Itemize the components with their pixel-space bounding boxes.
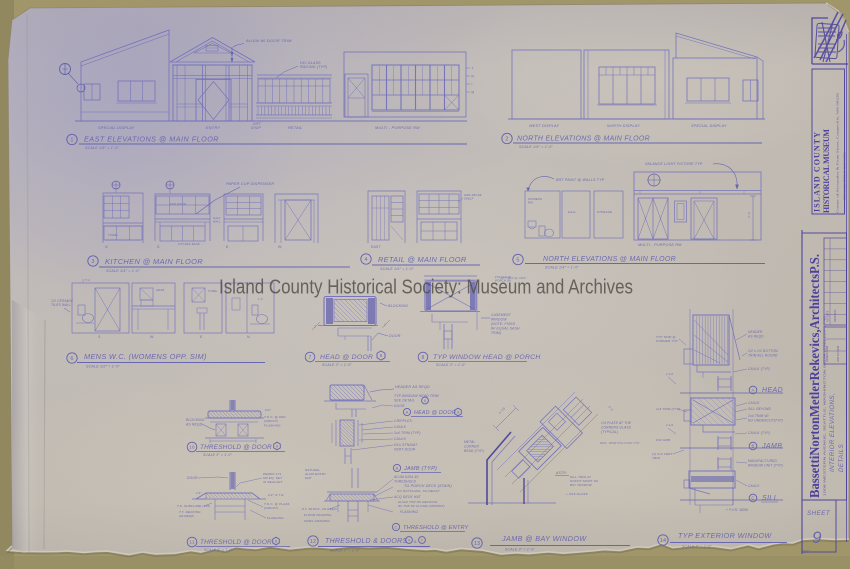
svg-text:2 1/2: 2 1/2 xyxy=(665,372,673,376)
svg-text:CAULK (TYP): CAULK (TYP) xyxy=(748,431,770,435)
svg-text:SHEET: SHEET xyxy=(807,510,831,517)
svg-text:BRT PAINT @ WALLS TYP: BRT PAINT @ WALLS TYP xyxy=(556,178,605,182)
svg-text:A: A xyxy=(406,409,409,414)
svg-text:CASEMENT: CASEMENT xyxy=(491,313,512,317)
svg-text:SCALE 3" = 1'-0": SCALE 3" = 1'-0" xyxy=(322,363,352,367)
svg-text:HEADER AS REQD: HEADER AS REQD xyxy=(395,385,430,389)
svg-text:1/2" N.T.S.: 1/2" N.T.S. xyxy=(268,493,285,497)
svg-text:WINDOW: WINDOW xyxy=(491,318,507,322)
svg-text:CRIPPLES: CRIPPLES xyxy=(394,419,413,423)
svg-text:JOB NO 8344: JOB NO 8344 xyxy=(836,345,840,362)
svg-text:ENTRY: ENTRY xyxy=(206,125,220,130)
svg-text:MANUFACTURED: MANUFACTURED xyxy=(748,459,777,463)
svg-text:AS REQD: AS REQD xyxy=(747,335,764,339)
svg-text:7: 7 xyxy=(309,355,312,361)
svg-text:W/ EQUAL SASH: W/ EQUAL SASH xyxy=(491,327,520,331)
svg-text:HALL: HALL xyxy=(568,210,576,214)
svg-text:FIN GWB: FIN GWB xyxy=(656,438,670,442)
svg-text:MULTI - PURPOSE RM: MULTI - PURPOSE RM xyxy=(638,243,682,247)
svg-text:HALF: HALF xyxy=(213,216,221,220)
svg-text:NO DATE: NO DATE xyxy=(826,310,830,322)
svg-text:SHELF: SHELF xyxy=(464,197,474,201)
svg-text:I: I xyxy=(472,83,473,87)
svg-text:HDW ABOVE: HDW ABOVE xyxy=(464,193,482,197)
svg-text:SCALE 1/4" = 1'-0": SCALE 1/4" = 1'-0" xyxy=(380,267,414,271)
svg-text:CAULK: CAULK xyxy=(394,425,407,429)
svg-text:1x4 TRIM (TYP): 1x4 TRIM (TYP) xyxy=(394,431,421,435)
svg-text:GRAB: GRAB xyxy=(156,288,164,292)
svg-text:KITCHEN @ MAIN FLOOR: KITCHEN @ MAIN FLOOR xyxy=(105,257,203,266)
svg-text:A: A xyxy=(752,388,755,393)
svg-text:HISTORICAL MUSEUM: HISTORICAL MUSEUM xyxy=(822,129,831,213)
svg-text:DOOR: DOOR xyxy=(394,404,405,408)
svg-text:N.: N. xyxy=(247,335,251,339)
svg-text:KITCHEN BAND: KITCHEN BAND xyxy=(178,242,200,246)
svg-text:1/4 PLATE AT THE: 1/4 PLATE AT THE xyxy=(601,421,632,425)
svg-text:JAMB: JAMB xyxy=(761,443,782,450)
svg-text:WINDOW UNIT (TYP): WINDOW UNIT (TYP) xyxy=(748,464,783,468)
svg-text:HEAD @ DOOR: HEAD @ DOOR xyxy=(320,354,373,361)
svg-text:HEAD: HEAD xyxy=(762,387,783,394)
svg-text:&: & xyxy=(414,539,417,544)
svg-text:TOWEL: TOWEL xyxy=(208,290,218,293)
svg-text:S.: S. xyxy=(98,335,102,339)
svg-text:FLOOR FRAMING: FLOOR FRAMING xyxy=(304,513,332,517)
svg-text:SCALE 1/8" = 1'-0": SCALE 1/8" = 1'-0" xyxy=(85,146,119,150)
svg-text:THRESHOLD @ DOOR: THRESHOLD @ DOOR xyxy=(200,539,272,546)
svg-text:ALUM #154-40: ALUM #154-40 xyxy=(393,475,419,479)
svg-text:SCALE 1/8" = 1'-0": SCALE 1/8" = 1'-0" xyxy=(519,145,553,149)
svg-text:(GROUT): (GROUT) xyxy=(264,506,278,510)
svg-text:6: 6 xyxy=(70,356,73,362)
svg-text:M: M xyxy=(472,91,475,95)
svg-text:RETAIL: RETAIL xyxy=(288,125,303,130)
svg-text:N.: N. xyxy=(105,245,109,249)
svg-text:DETAILS: DETAILS xyxy=(838,443,845,472)
svg-text:MFD. WDW POLYGON TYP: MFD. WDW POLYGON TYP xyxy=(600,441,639,445)
svg-text:1/2": 1/2" xyxy=(265,408,272,412)
svg-text:CAULK (TYP): CAULK (TYP) xyxy=(748,367,770,371)
svg-text:MENS W.C. (WOMENS OPP. SIM: MENS W.C. (WOMENS OPP. SIM) xyxy=(84,352,207,361)
svg-text:1x4 TRIM W/: 1x4 TRIM W/ xyxy=(748,414,770,418)
svg-text:SCALE 1/4" = 1'-0": SCALE 1/4" = 1'-0" xyxy=(545,266,579,270)
svg-text:SCALE 3" = 1'-0": SCALE 3" = 1'-0" xyxy=(203,453,233,457)
svg-text:EAST: EAST xyxy=(371,245,381,249)
svg-text:FLASHING: FLASHING xyxy=(400,510,418,514)
svg-text:S.: S. xyxy=(157,245,161,249)
svg-text:HEADER: HEADER xyxy=(748,330,763,334)
svg-text:B: B xyxy=(752,444,755,449)
svg-text:DRAWN EAW: DRAWN EAW xyxy=(825,345,829,362)
svg-text:12: 12 xyxy=(310,539,317,545)
svg-text:SILL: SILL xyxy=(762,495,778,502)
svg-text:SCALE 6" = 1'-0": SCALE 6" = 1'-0" xyxy=(682,545,712,549)
svg-text:WALL: WALL xyxy=(213,220,221,224)
svg-text:MAT: MAT xyxy=(305,476,313,480)
svg-text:BAY WINDOW: BAY WINDOW xyxy=(570,483,593,487)
svg-text:TYP WINDOW HEAD TRIM: TYP WINDOW HEAD TRIM xyxy=(394,394,439,398)
svg-text:WEST DISPLAY: WEST DISPLAY xyxy=(529,124,559,128)
svg-text:TYP EXTERIOR WINDOW: TYP EXTERIOR WINDOW xyxy=(678,531,772,540)
svg-text:RM: RM xyxy=(528,201,533,205)
svg-text:REG NO 3142 STATE OF WASHINGT: REG NO 3142 STATE OF WASHINGTON xyxy=(843,152,847,200)
svg-text:BLOCKING: BLOCKING xyxy=(186,418,205,422)
svg-text:SEE DETAIL: SEE DETAIL xyxy=(394,399,415,403)
svg-text:TRIM): TRIM) xyxy=(491,331,501,335)
svg-text:HEAD @ DOOR: HEAD @ DOOR xyxy=(414,410,456,416)
svg-text:13: 13 xyxy=(474,541,481,547)
svg-text:SCALE 1/4" = 1'-0": SCALE 1/4" = 1'-0" xyxy=(106,269,140,273)
svg-text:SCALE 3" = 1'-0": SCALE 3" = 1'-0" xyxy=(436,363,466,367)
svg-text:NORTH ELEVATIONS @ MAIN FLOOR: NORTH ELEVATIONS @ MAIN FLOOR xyxy=(543,256,676,263)
svg-text:HCs STN/NAT: HCs STN/NAT xyxy=(394,443,418,447)
svg-text:1/4": 1/4" xyxy=(196,491,202,495)
svg-text:8: 8 xyxy=(422,355,425,361)
svg-text:5'-2: 5'-2 xyxy=(85,278,90,282)
svg-text:SCALE 3" = 1'-0": SCALE 3" = 1'-0" xyxy=(330,549,360,553)
svg-text:DOOR: DOOR xyxy=(187,476,198,480)
svg-text:NORTH ELEVATIONS @ MAIN FLOOR: NORTH ELEVATIONS @ MAIN FLOOR xyxy=(517,136,650,143)
svg-text:SCALE 3" = 1'-0": SCALE 3" = 1'-0" xyxy=(505,548,535,552)
svg-text:1008 WESTERN AVENUE, SEATTLE,: 1008 WESTERN AVENUE, SEATTLE, WASHINGTON… xyxy=(823,315,827,496)
svg-text:9: 9 xyxy=(812,528,822,547)
svg-text:8: 8 xyxy=(380,353,383,359)
svg-text:1x4 TRIM (TYP): 1x4 TRIM (TYP) xyxy=(656,407,680,411)
svg-text:STORAGE: STORAGE xyxy=(597,210,612,214)
svg-text:W.: W. xyxy=(278,245,282,249)
svg-text:OF: OF xyxy=(803,549,810,554)
svg-text:PAPER CUP DISPENSER: PAPER CUP DISPENSER xyxy=(226,182,274,186)
svg-text:1: 1 xyxy=(70,137,73,143)
svg-text:+ 5/16 GLASS: + 5/16 GLASS xyxy=(566,492,588,496)
svg-text:ALIGN W/ DOOR TRIM: ALIGN W/ DOOR TRIM xyxy=(245,38,292,43)
svg-text:2 1/2: 2 1/2 xyxy=(665,423,673,427)
svg-text:THRESHOLD: THRESHOLD xyxy=(394,480,417,484)
svg-text:+ P.OS. WDW: + P.OS. WDW xyxy=(726,508,749,512)
svg-text:BEAD (TYP): BEAD (TYP) xyxy=(464,449,484,453)
svg-text:VERT DOOR: VERT DOOR xyxy=(394,448,416,452)
svg-text:CORNER: CORNER xyxy=(464,445,480,449)
svg-text:MULTI - PURPOSE RM: MULTI - PURPOSE RM xyxy=(375,125,420,130)
svg-text:IN SEALANT: IN SEALANT xyxy=(263,480,283,484)
svg-text:ACQ DECK HAT: ACQ DECK HAT xyxy=(393,495,422,499)
svg-text:TG PORCH DECK (STAIN): TG PORCH DECK (STAIN) xyxy=(404,484,452,488)
svg-text:E.: E. xyxy=(200,335,204,339)
svg-text:ISLAND COUNTY: ISLAND COUNTY xyxy=(813,132,822,212)
svg-text:SCALE 3" = 1'-0": SCALE 3" = 1'-0" xyxy=(204,548,234,552)
svg-text:P.T. BLOCK, AS REQD: P.T. BLOCK, AS REQD xyxy=(302,507,337,511)
svg-text:TOWEL: TOWEL xyxy=(108,233,119,237)
svg-text:BassettiNortonMetlerRekevics,A: BassettiNortonMetlerRekevics,ArchitectsP… xyxy=(807,254,822,498)
svg-text:CORNERS GLASS: CORNERS GLASS xyxy=(601,426,632,430)
svg-text:JAMB (TYP): JAMB (TYP) xyxy=(403,466,437,472)
svg-text:METAL: METAL xyxy=(464,440,475,444)
svg-text:DOOR: DOOR xyxy=(389,334,401,338)
svg-text:SHOP: SHOP xyxy=(251,126,262,130)
svg-text:VALANCE LIGHT FIXTURE TYP: VALANCE LIGHT FIXTURE TYP xyxy=(645,162,703,166)
svg-text:RETAIL @ MAIN FLOOR: RETAIL @ MAIN FLOOR xyxy=(378,255,467,264)
svg-text:1/2 x 1/2 BOTTOM: 1/2 x 1/2 BOTTOM xyxy=(748,349,778,353)
svg-text:THRESHOLD @ ENTRY: THRESHOLD @ ENTRY xyxy=(403,525,470,531)
svg-text:NO UNDERCUT(TYP): NO UNDERCUT(TYP) xyxy=(748,419,783,423)
svg-text:SILL BEYOND: SILL BEYOND xyxy=(748,407,772,411)
svg-text:B: B xyxy=(396,465,399,470)
svg-text:CORNER TYP: CORNER TYP xyxy=(656,339,678,343)
svg-text:(GROUT): (GROUT) xyxy=(264,419,278,423)
svg-text:NO NOTCHING, NO DECAY: NO NOTCHING, NO DECAY xyxy=(397,489,440,493)
svg-text:EAST ELEVATIONS @ MAIN FLOOR: EAST ELEVATIONS @ MAIN FLOOR xyxy=(84,135,219,144)
svg-text:FAN HOOD: FAN HOOD xyxy=(170,202,186,206)
svg-text:AS REQD: AS REQD xyxy=(185,423,203,427)
svg-text:W.: W. xyxy=(150,335,154,339)
svg-text:4: 4 xyxy=(408,538,410,542)
svg-text:11: 11 xyxy=(189,540,194,545)
svg-text:ASTR:: ASTR: xyxy=(555,471,567,475)
svg-text:FLASHING: FLASHING xyxy=(267,516,284,520)
svg-text:NORTH DISPLAY: NORTH DISPLAY xyxy=(607,124,640,128)
svg-text:E.: E. xyxy=(226,245,230,249)
svg-text:TILES WALL: TILES WALL xyxy=(51,303,71,307)
svg-text:BLOCKING: BLOCKING xyxy=(388,304,408,308)
svg-text:CAULK: CAULK xyxy=(748,484,760,488)
svg-text:8: 8 xyxy=(424,399,426,403)
svg-text:(TYPICAL): (TYPICAL) xyxy=(601,430,618,434)
svg-text:FLASHING: FLASHING xyxy=(264,424,281,428)
svg-text:3: 3 xyxy=(91,259,94,265)
svg-text:THRESHOLD @ DOOR: THRESHOLD @ DOOR xyxy=(200,444,272,451)
svg-text:7: 7 xyxy=(421,538,423,542)
svg-text:SCALE 1/2" = 1'-0": SCALE 1/2" = 1'-0" xyxy=(86,365,120,369)
svg-text:T.S. SUBFLARE (2x6): T.S. SUBFLARE (2x6) xyxy=(177,504,210,508)
svg-text:(NOTE: FIXED: (NOTE: FIXED xyxy=(491,322,516,326)
svg-text:TRIM: TRIM xyxy=(652,456,660,460)
svg-text:CAULK: CAULK xyxy=(394,437,407,441)
svg-text:AS REQD: AS REQD xyxy=(178,514,195,518)
svg-text:C: C xyxy=(751,496,754,501)
svg-text:14: 14 xyxy=(660,538,667,544)
svg-text:T: T xyxy=(472,67,474,71)
svg-text:SPECIAL DISPLAY: SPECIAL DISPLAY xyxy=(691,124,727,128)
svg-text:JAMB @ BAY WINDOW: JAMB @ BAY WINDOW xyxy=(501,534,587,543)
svg-text:THRESHOLD & DOORS: THRESHOLD & DOORS xyxy=(325,538,408,545)
svg-text:CAULK: CAULK xyxy=(748,401,760,405)
svg-text:Island County Historical Socie: Island County Historical Society: Museum… xyxy=(219,277,633,299)
svg-text:CRWL FRAMING: CRWL FRAMING xyxy=(304,519,330,523)
svg-text:4: 4 xyxy=(364,257,367,263)
svg-text:TYP WINDOW HEAD @ PORCH: TYP WINDOW HEAD @ PORCH xyxy=(433,354,541,361)
svg-text:SPECIAL DISPLAY: SPECIAL DISPLAY xyxy=(98,125,135,130)
svg-text:C: C xyxy=(394,524,397,529)
svg-text:TRIM ALL ROUND: TRIM ALL ROUND xyxy=(748,354,778,358)
svg-text:10: 10 xyxy=(189,445,195,450)
svg-text:2: 2 xyxy=(505,136,508,142)
svg-text:INTERIOR ELEVATIONS,: INTERIOR ELEVATIONS, xyxy=(829,393,836,472)
svg-text:5: 5 xyxy=(516,257,519,263)
svg-text:4'-0: 4'-0 xyxy=(747,212,751,218)
svg-text:REVISION: REVISION xyxy=(833,309,837,322)
svg-text:W/ TOP OF FLOOR (APPROX): W/ TOP OF FLOOR (APPROX) xyxy=(398,504,445,508)
svg-text:RAILING (TYP): RAILING (TYP) xyxy=(300,65,327,69)
